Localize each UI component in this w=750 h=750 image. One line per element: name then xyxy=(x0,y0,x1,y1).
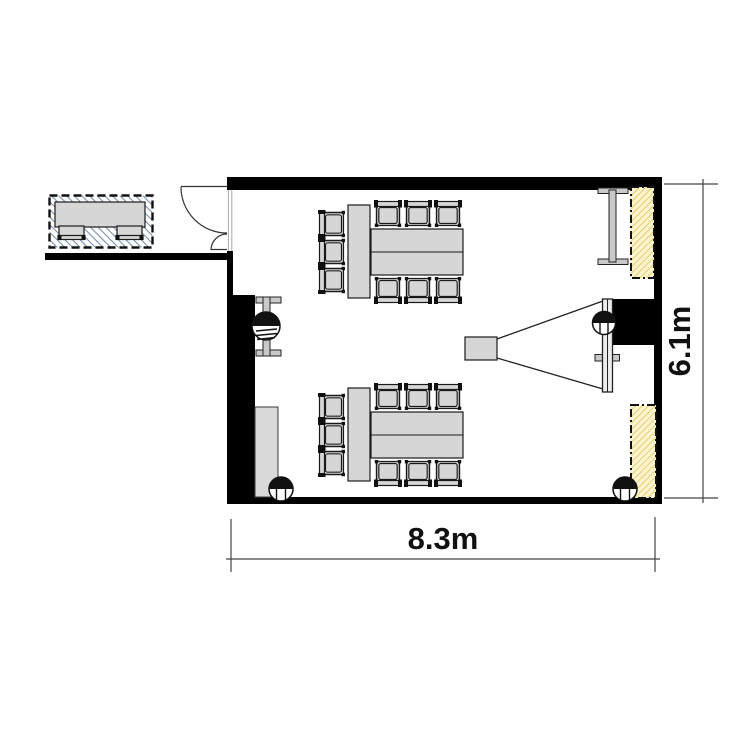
projector xyxy=(465,337,497,360)
chair xyxy=(404,200,432,227)
window-panel-top xyxy=(631,187,654,278)
floor-plan: 8.3m 6.1m xyxy=(0,0,750,750)
chair xyxy=(404,277,432,304)
chair xyxy=(374,277,402,304)
projection-setup xyxy=(465,299,620,392)
lower-conference-group xyxy=(318,383,463,487)
screen-tab-left xyxy=(595,355,603,362)
column-bottom-right xyxy=(613,477,637,501)
chair xyxy=(318,449,345,477)
column-mid-left xyxy=(252,312,280,340)
chair xyxy=(434,383,462,410)
wall-top xyxy=(227,177,662,190)
projection-beam-top xyxy=(497,301,603,339)
wall-left-pier xyxy=(227,295,255,497)
chair xyxy=(404,383,432,410)
hall-table xyxy=(55,202,145,227)
dimension-width: 8.3m xyxy=(226,517,660,572)
wall-corridor xyxy=(45,253,233,260)
column-dome xyxy=(252,312,280,326)
hall-chair xyxy=(58,226,86,240)
entrance-door xyxy=(181,187,232,252)
projection-beam-bottom xyxy=(497,358,603,389)
door-swing-arc-small xyxy=(211,234,227,250)
column-bottom-left xyxy=(269,477,293,501)
wall-board xyxy=(598,188,628,265)
chair xyxy=(434,460,462,487)
chair xyxy=(374,460,402,487)
wall-board-rail xyxy=(609,190,616,262)
dimension-height: 6.1m xyxy=(662,179,718,503)
column-mid-right xyxy=(593,312,616,335)
upper-conference-group xyxy=(318,200,463,304)
floor-plan-drawing: 8.3m 6.1m xyxy=(0,0,750,750)
chair xyxy=(318,393,345,421)
wall-bottom xyxy=(227,497,662,504)
chair xyxy=(434,200,462,227)
chair xyxy=(434,277,462,304)
hall-chair xyxy=(116,226,144,240)
chair xyxy=(404,460,432,487)
chair xyxy=(374,383,402,410)
head-table xyxy=(348,205,370,298)
chair xyxy=(318,210,345,238)
width-dimension-label: 8.3m xyxy=(408,521,479,556)
chair xyxy=(318,421,345,449)
door-swing-arc-large xyxy=(181,187,227,233)
chair xyxy=(318,238,345,266)
chair xyxy=(374,200,402,227)
wall-right-pier xyxy=(613,299,661,345)
screen-tab-right xyxy=(613,355,620,362)
hall-table-zone xyxy=(50,196,153,248)
head-table xyxy=(348,388,370,481)
height-dimension-label: 6.1m xyxy=(662,306,697,377)
chair xyxy=(318,266,345,294)
